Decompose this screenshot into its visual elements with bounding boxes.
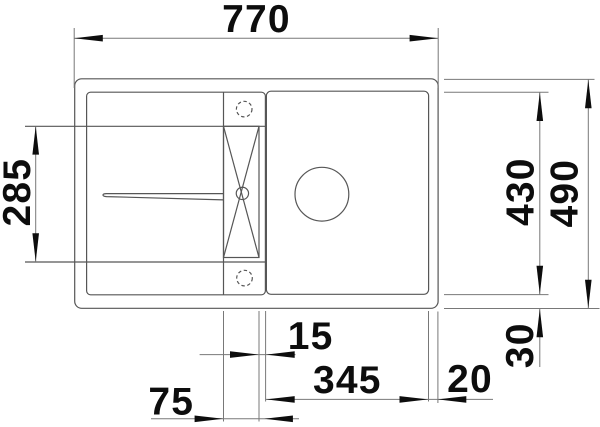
svg-text:285: 285 [0,158,39,227]
svg-text:20: 20 [447,358,493,401]
svg-text:15: 15 [288,315,334,358]
svg-text:490: 490 [544,159,587,228]
svg-text:345: 345 [313,359,382,402]
svg-text:30: 30 [499,322,542,368]
svg-text:770: 770 [222,0,291,41]
svg-text:430: 430 [499,157,542,226]
svg-text:75: 75 [148,381,194,424]
